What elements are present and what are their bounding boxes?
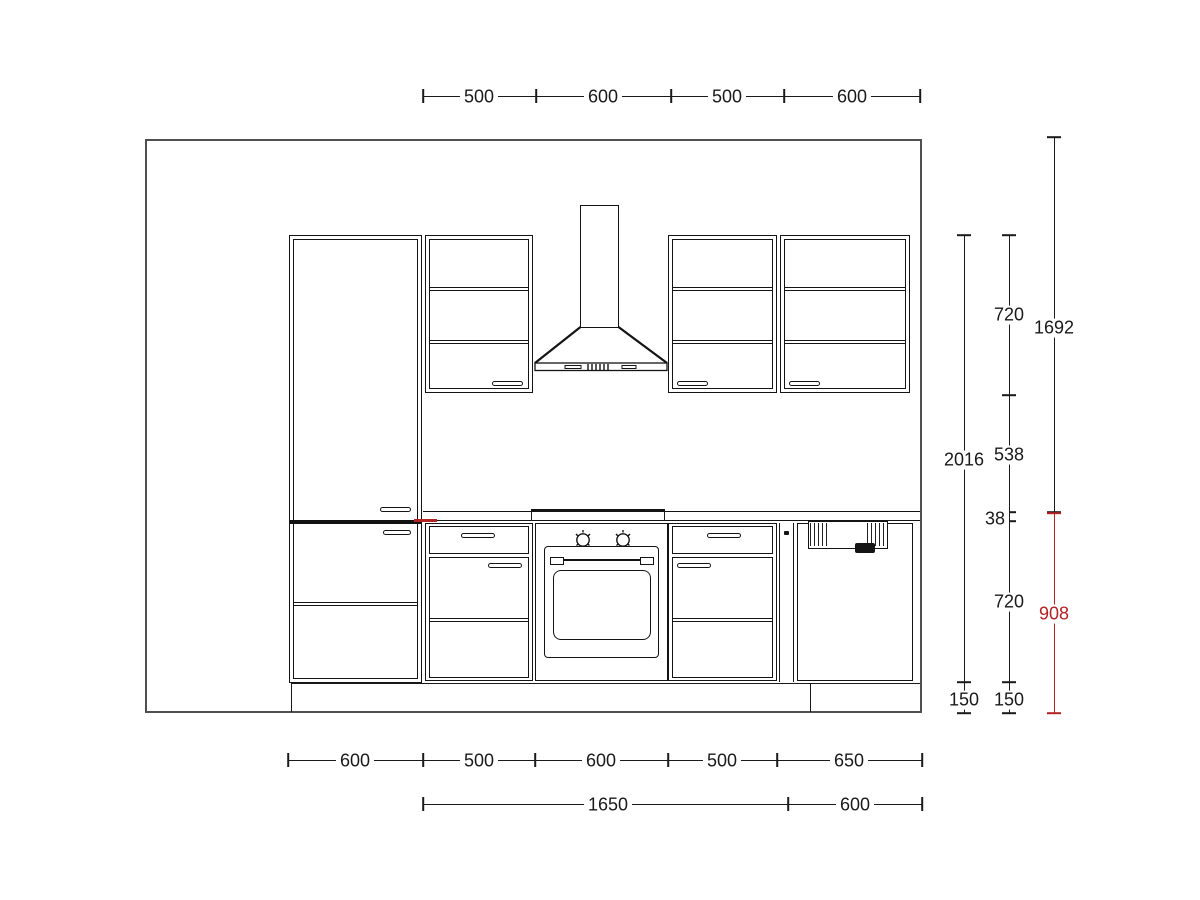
cooktop-top-edge — [531, 509, 665, 512]
dim-tick — [1002, 712, 1016, 714]
dim-label: 500 — [460, 88, 498, 107]
cooktop-left-edge — [531, 511, 532, 521]
dim-tick — [534, 753, 536, 767]
dim-tick — [919, 89, 921, 103]
dim-label-red: 908 — [1035, 605, 1073, 624]
dim-label: 2016 — [940, 451, 988, 470]
dim-label: 650 — [830, 752, 868, 771]
oven-door-handle — [550, 559, 654, 561]
sink — [806, 519, 892, 555]
dim-label: 500 — [703, 752, 741, 771]
wall-cabinet-2-handle — [677, 381, 708, 386]
dim-tick-red — [1047, 712, 1061, 714]
dim-tick — [667, 753, 669, 767]
door-handle — [677, 563, 711, 568]
tall-cabinet-divider — [290, 520, 421, 524]
freezer-door-handle — [383, 530, 411, 535]
wall-cabinet-1-handle — [492, 381, 523, 386]
shelf-line — [673, 340, 772, 344]
dim-tick — [957, 681, 971, 683]
dim-tick — [535, 89, 537, 103]
dim-line — [964, 235, 965, 713]
shelf-line — [673, 287, 772, 291]
drawer-front — [429, 526, 529, 554]
shelf-line — [430, 287, 528, 291]
door-handle — [488, 563, 522, 568]
dim-label: 720 — [990, 306, 1028, 325]
wall-cabinet-2-frame — [672, 239, 773, 389]
dim-tick — [787, 797, 789, 811]
filler-fixing-dot — [784, 531, 789, 535]
sink-drain — [855, 543, 875, 553]
sink-hatch-left — [810, 523, 828, 546]
oven-unit — [535, 523, 668, 681]
collision-marker — [414, 519, 437, 523]
dim-label: 150 — [990, 691, 1028, 710]
dim-tick — [1002, 234, 1016, 236]
dim-label: 38 — [981, 510, 1009, 529]
dim-tick — [776, 753, 778, 767]
fridge-door-handle — [380, 507, 411, 512]
dim-label: 720 — [990, 593, 1028, 612]
base-cabinet-2 — [668, 523, 777, 681]
dim-tick — [670, 89, 672, 103]
dim-label: 500 — [460, 752, 498, 771]
dim-tick-red — [1047, 512, 1061, 514]
cooktop-right-edge — [664, 511, 665, 521]
dim-tick — [287, 753, 289, 767]
dim-label: 500 — [708, 88, 746, 107]
dim-tick — [422, 797, 424, 811]
dim-label: 600 — [833, 88, 871, 107]
dim-tick — [921, 797, 923, 811]
dim-label: 1692 — [1030, 319, 1078, 338]
plinth-top-line — [291, 683, 920, 684]
tall-cabinet-frame — [293, 239, 418, 679]
dim-tick — [1002, 394, 1016, 396]
drawer-handle — [707, 533, 741, 538]
dim-label: 538 — [990, 446, 1028, 465]
dim-tick — [921, 753, 923, 767]
dim-tick — [1002, 681, 1016, 683]
kitchen-elevation-drawing: 500 600 500 600 600 500 600 500 650 1650… — [0, 0, 1200, 900]
dim-label: 1650 — [584, 796, 632, 815]
dim-tick — [957, 234, 971, 236]
freezer-divider-line — [294, 602, 417, 606]
plinth-left-edge — [291, 683, 292, 712]
dim-label: 600 — [336, 752, 374, 771]
dim-tick — [422, 89, 424, 103]
dim-label: 600 — [584, 88, 622, 107]
wall-cabinet-1 — [425, 235, 533, 393]
filler-strip-right — [793, 523, 794, 682]
hood-canopy — [525, 318, 675, 376]
drawer-front — [672, 526, 773, 554]
wall-cabinet-3 — [780, 235, 910, 393]
wall-cabinet-3-handle — [789, 381, 820, 386]
filler-strip-left — [779, 523, 780, 682]
shelf-line — [430, 340, 528, 344]
wall-cabinet-3-frame — [784, 239, 906, 389]
oven-window — [553, 570, 651, 640]
front-divider-line — [430, 618, 528, 622]
wall-cabinet-1-frame — [429, 239, 529, 389]
shelf-line — [785, 287, 905, 291]
plinth-joint — [810, 684, 811, 712]
hood-chimney — [580, 205, 619, 328]
dim-label: 150 — [945, 691, 983, 710]
wall-cabinet-2 — [668, 235, 777, 393]
dim-tick — [783, 89, 785, 103]
shelf-line — [785, 340, 905, 344]
base-cabinet-1 — [425, 523, 533, 681]
front-divider-line — [673, 618, 772, 622]
drawer-handle — [461, 533, 495, 538]
dim-tick — [422, 753, 424, 767]
dim-label: 600 — [582, 752, 620, 771]
tall-cabinet — [289, 235, 422, 683]
dim-tick — [1047, 136, 1061, 138]
dim-tick — [957, 712, 971, 714]
dim-label: 600 — [836, 796, 874, 815]
